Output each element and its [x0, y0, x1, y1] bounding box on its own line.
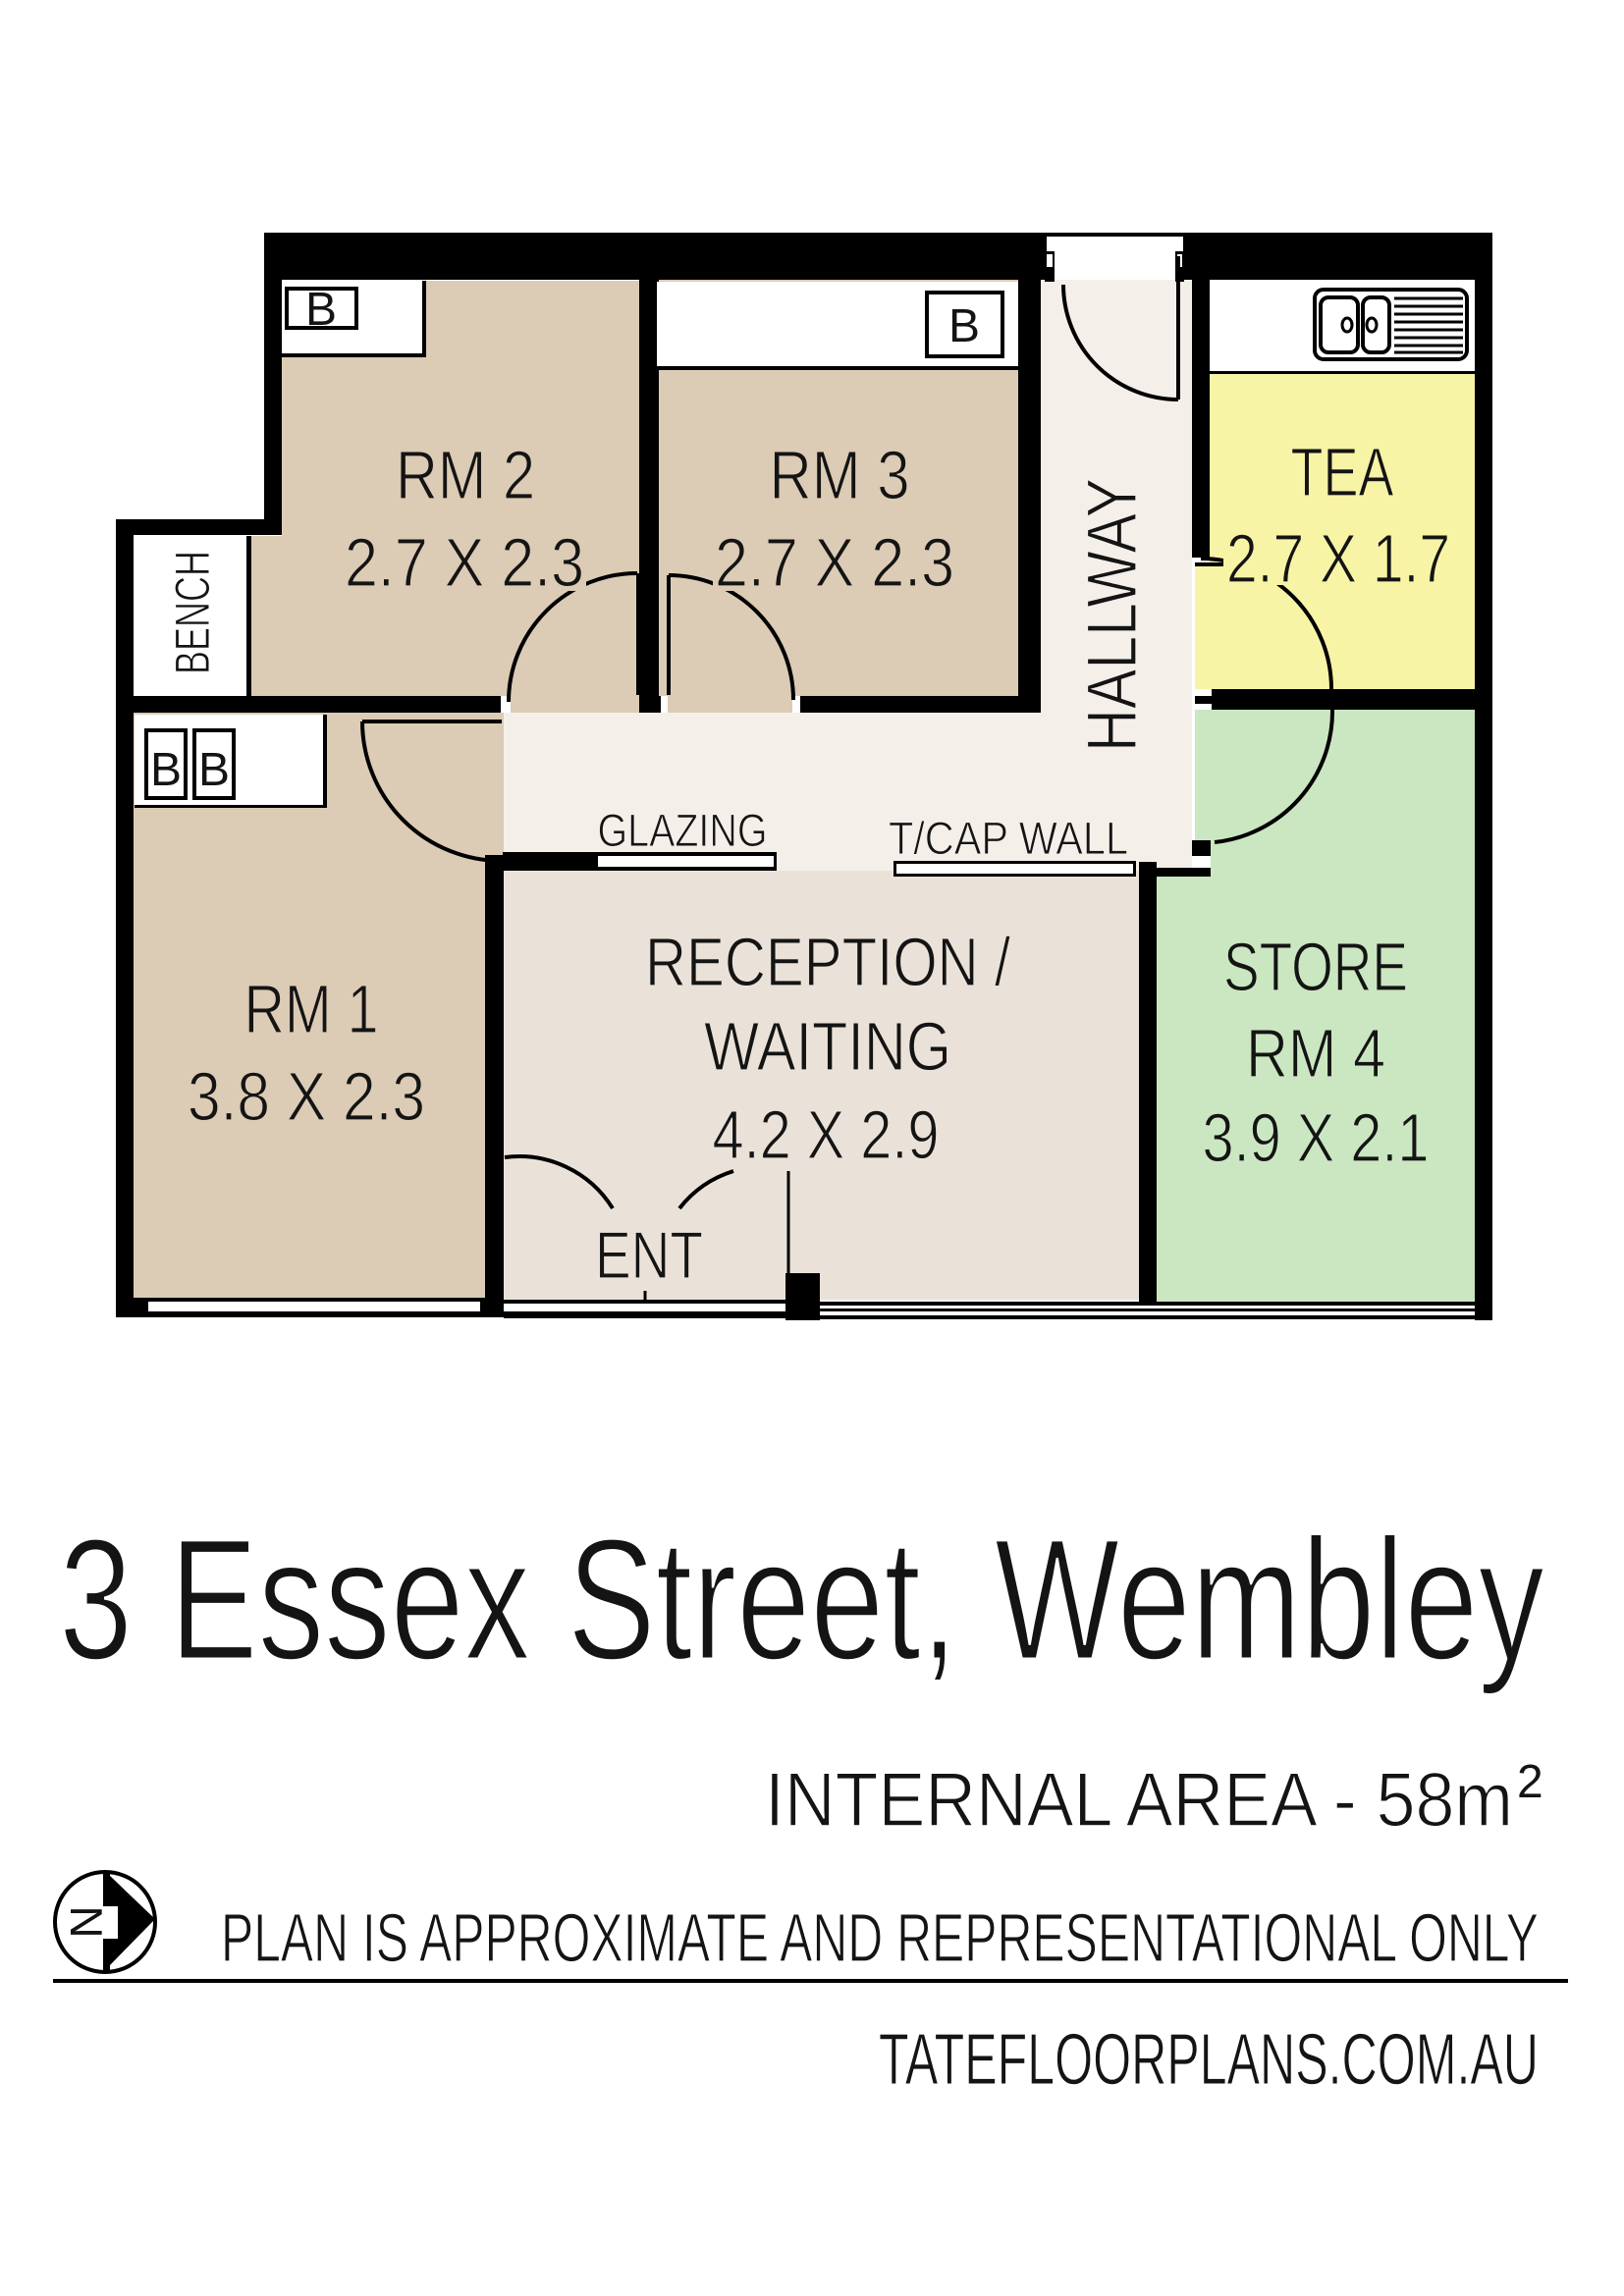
- svg-text:BENCH: BENCH: [165, 551, 220, 674]
- svg-text:3.9 X 2.1: 3.9 X 2.1: [1203, 1099, 1430, 1176]
- svg-text:WAITING: WAITING: [704, 1008, 951, 1085]
- svg-text:ENT: ENT: [595, 1218, 703, 1293]
- svg-text:N: N: [61, 1905, 112, 1938]
- svg-text:T/CAP WALL: T/CAP WALL: [889, 812, 1128, 864]
- svg-text:3 Essex Street, Wembley: 3 Essex Street, Wembley: [59, 1504, 1544, 1696]
- svg-text:TATEFLOORPLANS.COM.AU: TATEFLOORPLANS.COM.AU: [879, 2018, 1539, 2100]
- svg-text:RM 4: RM 4: [1246, 1015, 1385, 1092]
- svg-text:RECEPTION /: RECEPTION /: [645, 924, 1010, 1000]
- svg-text:4.2 X 2.9: 4.2 X 2.9: [713, 1096, 940, 1173]
- svg-text:B: B: [150, 744, 182, 796]
- svg-text:GLAZING: GLAZING: [598, 804, 768, 856]
- svg-text:B: B: [198, 744, 230, 796]
- svg-text:B: B: [305, 284, 337, 336]
- svg-text:RM 1: RM 1: [244, 971, 379, 1047]
- svg-text:2.7 X 2.3: 2.7 X 2.3: [715, 524, 954, 601]
- svg-text:B: B: [948, 300, 980, 352]
- svg-text:RM 3: RM 3: [770, 437, 910, 513]
- svg-text:TEA: TEA: [1291, 434, 1394, 510]
- svg-text:2.7 X 1.7: 2.7 X 1.7: [1226, 520, 1450, 597]
- svg-text:2.7 X 2.3: 2.7 X 2.3: [345, 524, 584, 601]
- svg-text:PLAN IS APPROXIMATE AND REPRES: PLAN IS APPROXIMATE AND REPRESENTATIONAL…: [221, 1899, 1539, 1976]
- svg-text:2: 2: [1517, 1756, 1543, 1808]
- svg-text:STORE: STORE: [1223, 929, 1408, 1005]
- svg-text:HALLWAY: HALLWAY: [1073, 478, 1152, 752]
- svg-text:3.8 X 2.3: 3.8 X 2.3: [188, 1058, 425, 1135]
- svg-text:RM 2: RM 2: [396, 437, 535, 513]
- svg-text:INTERNAL AREA - 58m: INTERNAL AREA - 58m: [765, 1756, 1513, 1842]
